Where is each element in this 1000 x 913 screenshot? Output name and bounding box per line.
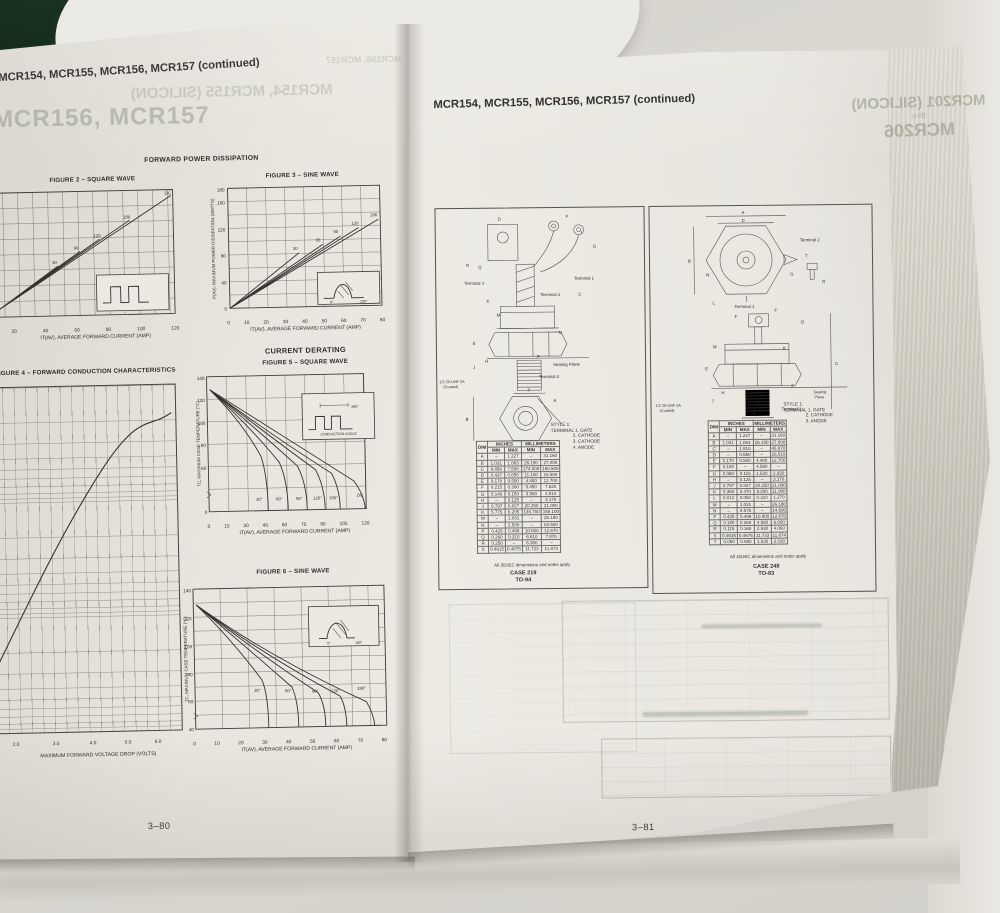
svg-text:180: 180 xyxy=(217,187,225,192)
tick-label: 0 xyxy=(208,525,211,530)
tick-label: 120 xyxy=(171,326,179,331)
svg-text:G: G xyxy=(593,244,597,249)
case-248-drawing: A D B N L G T R F F Q M K C E J H xyxy=(649,207,873,421)
case-219-jedec-note: All JEDEC dimensions and notes apply xyxy=(457,561,607,568)
svg-text:L: L xyxy=(712,300,715,305)
svg-text:K: K xyxy=(486,299,489,304)
case-219-dim-table: DIMINCHESMILLIMETERS MINMAXMINMAX A–1.22… xyxy=(476,440,562,554)
figure-4-x-label: MAXIMUM FORWARD VOLTAGE DROP (VOLTS) xyxy=(40,751,156,759)
tick-label: 80 xyxy=(380,318,385,323)
svg-text:Terminal 1: Terminal 1 xyxy=(734,304,754,309)
svg-text:360°: 360° xyxy=(351,405,359,409)
svg-text:T: T xyxy=(805,253,808,258)
tick-label: 40 xyxy=(286,740,291,745)
figure-4: 2.0 3.0 4.0 5.0 6.0 MAXIMUM FORWARD VOLT… xyxy=(0,380,187,777)
ghost-title-line2: MCR156, MCR157 xyxy=(0,100,313,135)
svg-text:(Coated): (Coated) xyxy=(660,409,676,413)
svg-text:0: 0 xyxy=(224,306,227,311)
svg-text:120°: 120° xyxy=(331,688,340,693)
svg-text:D: D xyxy=(742,218,745,223)
svg-text:Seating: Seating xyxy=(813,390,826,394)
svg-text:30: 30 xyxy=(52,260,57,265)
svg-text:6.0: 6.0 xyxy=(155,739,162,745)
svg-text:M: M xyxy=(713,344,717,349)
case-248-panel: A D B N L G T R F F Q M K C E J H xyxy=(648,204,876,594)
svg-text:Terminal 2: Terminal 2 xyxy=(540,292,560,297)
svg-text:Terminal 3: Terminal 3 xyxy=(464,281,484,286)
svg-text:R: R xyxy=(466,263,469,268)
svg-text:0°: 0° xyxy=(330,300,334,304)
tick-label: 70 xyxy=(358,739,363,744)
tick-label: 30 xyxy=(243,524,248,529)
svg-text:180°: 180° xyxy=(360,299,368,303)
svg-text:P: P xyxy=(537,354,540,359)
square-wave-inset xyxy=(96,274,169,311)
svg-text:60: 60 xyxy=(316,237,321,242)
tick-label: 20 xyxy=(263,321,268,326)
svg-text:A: A xyxy=(553,398,556,403)
tick-label: 50 xyxy=(322,319,327,324)
svg-text:J: J xyxy=(473,365,475,370)
svg-text:140: 140 xyxy=(197,376,205,381)
svg-text:140: 140 xyxy=(183,588,191,593)
ghost-table-b xyxy=(601,735,892,798)
svg-text:(Coated): (Coated) xyxy=(443,385,459,389)
svg-text:160: 160 xyxy=(217,200,225,205)
svg-text:Terminal 1: Terminal 1 xyxy=(574,276,594,281)
gutter-shadow xyxy=(394,24,424,862)
svg-text:Q: Q xyxy=(801,319,805,324)
svg-text:G: G xyxy=(790,271,794,276)
svg-text:M: M xyxy=(497,313,501,318)
tick-label: 105 xyxy=(340,522,348,527)
tick-label: 60 xyxy=(74,328,79,333)
svg-text:Q: Q xyxy=(478,265,482,270)
svg-text:H: H xyxy=(721,390,724,395)
svg-text:H: H xyxy=(485,359,488,364)
left-page-bottom-shadow xyxy=(0,857,415,874)
svg-text:40: 40 xyxy=(189,727,195,732)
svg-text:80: 80 xyxy=(221,253,227,258)
ghost-mcr201-block: MCR201 (SILICON) thru MCR206 xyxy=(842,91,996,143)
svg-text:C: C xyxy=(578,292,581,297)
svg-text:2.0: 2.0 xyxy=(13,742,20,748)
case-248-jedec-note: All JEDEC dimensions and notes apply xyxy=(693,553,843,560)
case-219-label: CASE 219 TO-94 xyxy=(459,570,587,585)
svg-text:B: B xyxy=(688,259,691,264)
svg-text:DC: DC xyxy=(357,493,363,498)
svg-text:E: E xyxy=(705,366,708,371)
dim-table-row: S0.46150.467511.72311.874 xyxy=(478,546,561,553)
svg-text:0: 0 xyxy=(205,510,208,515)
tick-label: 40 xyxy=(43,329,48,334)
svg-text:B: B xyxy=(466,417,469,422)
sine-wave-inset-6 xyxy=(308,605,379,646)
tick-label: 20 xyxy=(11,330,16,335)
svg-text:60: 60 xyxy=(201,466,207,471)
ghost-title-small: MCR156, MCR157 xyxy=(222,54,402,68)
svg-text:180°: 180° xyxy=(357,686,366,691)
figure-6: FIGURE 6 – SINE WAVE 30° 60° 90° 120° 18… xyxy=(186,566,405,754)
tick-label: 50 xyxy=(310,740,315,745)
tick-label: 30 xyxy=(283,320,288,325)
svg-text:E: E xyxy=(473,341,476,346)
figure-5: FIGURE 5 – SQUARE WAVE 30° 60° 90° 120° … xyxy=(201,357,413,537)
svg-text:Terminal 2: Terminal 2 xyxy=(800,237,820,242)
tick-label: 100 xyxy=(137,327,145,332)
svg-text:120°: 120° xyxy=(313,495,322,500)
svg-text:3.0: 3.0 xyxy=(53,741,60,747)
tick-label: 80 xyxy=(382,738,387,743)
tick-label: 30 xyxy=(262,741,267,746)
figure-3-chart: 180 120 90 60 30 180 160 120 80 40 0 P(A… xyxy=(207,177,400,317)
case-219-drawing: D F I G R Q K M N C E H J P S A B xyxy=(435,209,645,443)
svg-text:40: 40 xyxy=(221,280,227,285)
svg-text:N: N xyxy=(706,272,709,277)
svg-text:180: 180 xyxy=(370,212,378,217)
current-derating-title: CURRENT DERATING xyxy=(203,344,408,357)
svg-text:A: A xyxy=(741,210,744,215)
tick-label: 70 xyxy=(360,318,365,323)
tick-label: 40 xyxy=(302,320,307,325)
tick-label: 80 xyxy=(106,328,111,333)
tick-label: 0 xyxy=(193,742,196,747)
svg-text:30: 30 xyxy=(293,246,298,251)
figure-3-y-label: P(AV), MAXIMUM POWER DISSIPATION (WATTS) xyxy=(210,198,217,299)
tick-label: 10 xyxy=(214,742,219,747)
svg-text:90°: 90° xyxy=(312,689,319,694)
tick-label: 60 xyxy=(334,739,339,744)
svg-text:30°: 30° xyxy=(254,688,261,693)
figure-6-chart: 30° 60° 90° 120° 180° 140 120 100 80 60 … xyxy=(186,573,404,737)
svg-text:J: J xyxy=(711,398,713,403)
svg-text:Terminal 4: Terminal 4 xyxy=(539,374,559,379)
svg-text:C: C xyxy=(835,361,838,366)
svg-text:90: 90 xyxy=(74,245,79,250)
case-248-style: STYLE 1: TERMINAL 1. GATE 2. CATHODE 3. … xyxy=(784,401,833,424)
right-page-header: MCR154, MCR155, MCR156, MCR157 (continue… xyxy=(433,93,695,111)
svg-text:R: R xyxy=(822,279,825,284)
svg-text:180°: 180° xyxy=(329,495,338,500)
svg-text:80: 80 xyxy=(201,443,207,448)
svg-text:F: F xyxy=(775,308,778,313)
right-page-number: 3–81 xyxy=(632,822,655,832)
tick-label: 90 xyxy=(320,522,325,527)
svg-text:4.0: 4.0 xyxy=(90,740,97,746)
figure-5-y-label: TC, MAXIMUM CASE TEMPERATURE (°C) xyxy=(195,401,202,487)
case-248-dim-table: DIMINCHESMILLIMETERS MINMAXMINMAX A–1.22… xyxy=(708,420,789,546)
figure-3: FIGURE 3 – SINE WAVE 180 120 90 60 30 18… xyxy=(207,170,400,334)
tick-label: 10 xyxy=(244,321,249,326)
tick-label: 45 xyxy=(263,524,268,529)
svg-text:180°: 180° xyxy=(355,641,363,645)
svg-text:CONDUCTION ANGLE: CONDUCTION ANGLE xyxy=(320,432,357,437)
dim-table-row: T0.0600.0801.5302.030 xyxy=(709,538,787,545)
svg-text:120: 120 xyxy=(218,227,226,232)
ghost-table-c xyxy=(449,602,638,754)
svg-text:I: I xyxy=(581,230,582,235)
svg-text:Plane: Plane xyxy=(814,395,824,399)
svg-text:D: D xyxy=(498,217,501,222)
tick-label: 0 xyxy=(227,321,230,326)
svg-text:DC: DC xyxy=(165,191,171,196)
tick-label: 75 xyxy=(301,523,306,528)
svg-text:5.0: 5.0 xyxy=(125,739,132,745)
figure-5-chart: 30° 60° 90° 120° 180° DC 140 120 100 80 … xyxy=(201,364,412,520)
photo-open-databook: MCR154, MCR155, MCR156, MCR157 (continue… xyxy=(0,0,1000,913)
tick-label: 120 xyxy=(361,521,369,526)
svg-text:60°: 60° xyxy=(276,496,283,501)
figure-2: FIGURE 2 – SQUARE WAVE DC 180 120 90 30 … xyxy=(0,174,194,342)
svg-text:S: S xyxy=(753,411,756,416)
svg-text:1/2 20-UNF 2A: 1/2 20-UNF 2A xyxy=(656,404,682,408)
svg-text:120: 120 xyxy=(93,233,101,238)
svg-text:P: P xyxy=(791,383,794,388)
tick-label: 60 xyxy=(341,319,346,324)
svg-text:Seating Plane: Seating Plane xyxy=(553,362,580,367)
figure-4-chart: 2.0 3.0 4.0 5.0 6.0 MAXIMUM FORWARD VOLT… xyxy=(0,380,187,777)
svg-text:30°: 30° xyxy=(256,497,263,502)
svg-text:F: F xyxy=(566,214,569,219)
svg-text:F: F xyxy=(735,314,738,319)
tick-label: 15 xyxy=(224,524,229,529)
case-248-label: CASE 248 TO-83 xyxy=(701,563,831,578)
svg-text:1/2 20-UNF 2A: 1/2 20-UNF 2A xyxy=(439,380,465,384)
svg-text:180: 180 xyxy=(123,214,131,219)
figure-4-title: FIGURE 4 – FORWARD CONDUCTION CHARACTERI… xyxy=(0,366,215,378)
svg-text:N: N xyxy=(559,330,562,335)
figure-2-chart: DC 180 120 90 30 40 20 0 xyxy=(0,181,193,325)
svg-text:K: K xyxy=(783,346,786,351)
section-title-forward-power: FORWARD POWER DISSIPATION xyxy=(89,154,314,166)
left-page-number: 3–80 xyxy=(148,821,171,831)
svg-text:60°: 60° xyxy=(285,688,292,693)
figure-6-y-label: TC, MAXIMUM CASE TEMPERATURE (°C) xyxy=(182,616,189,702)
svg-text:120: 120 xyxy=(351,221,359,226)
tick-label: 20 xyxy=(238,741,243,746)
svg-text:90: 90 xyxy=(333,229,338,234)
tick-label: 60 xyxy=(282,523,287,528)
case-219-panel: D F I G R Q K M N C E H J P S A B xyxy=(434,206,648,590)
svg-text:S: S xyxy=(527,387,530,392)
svg-text:90°: 90° xyxy=(296,496,303,501)
